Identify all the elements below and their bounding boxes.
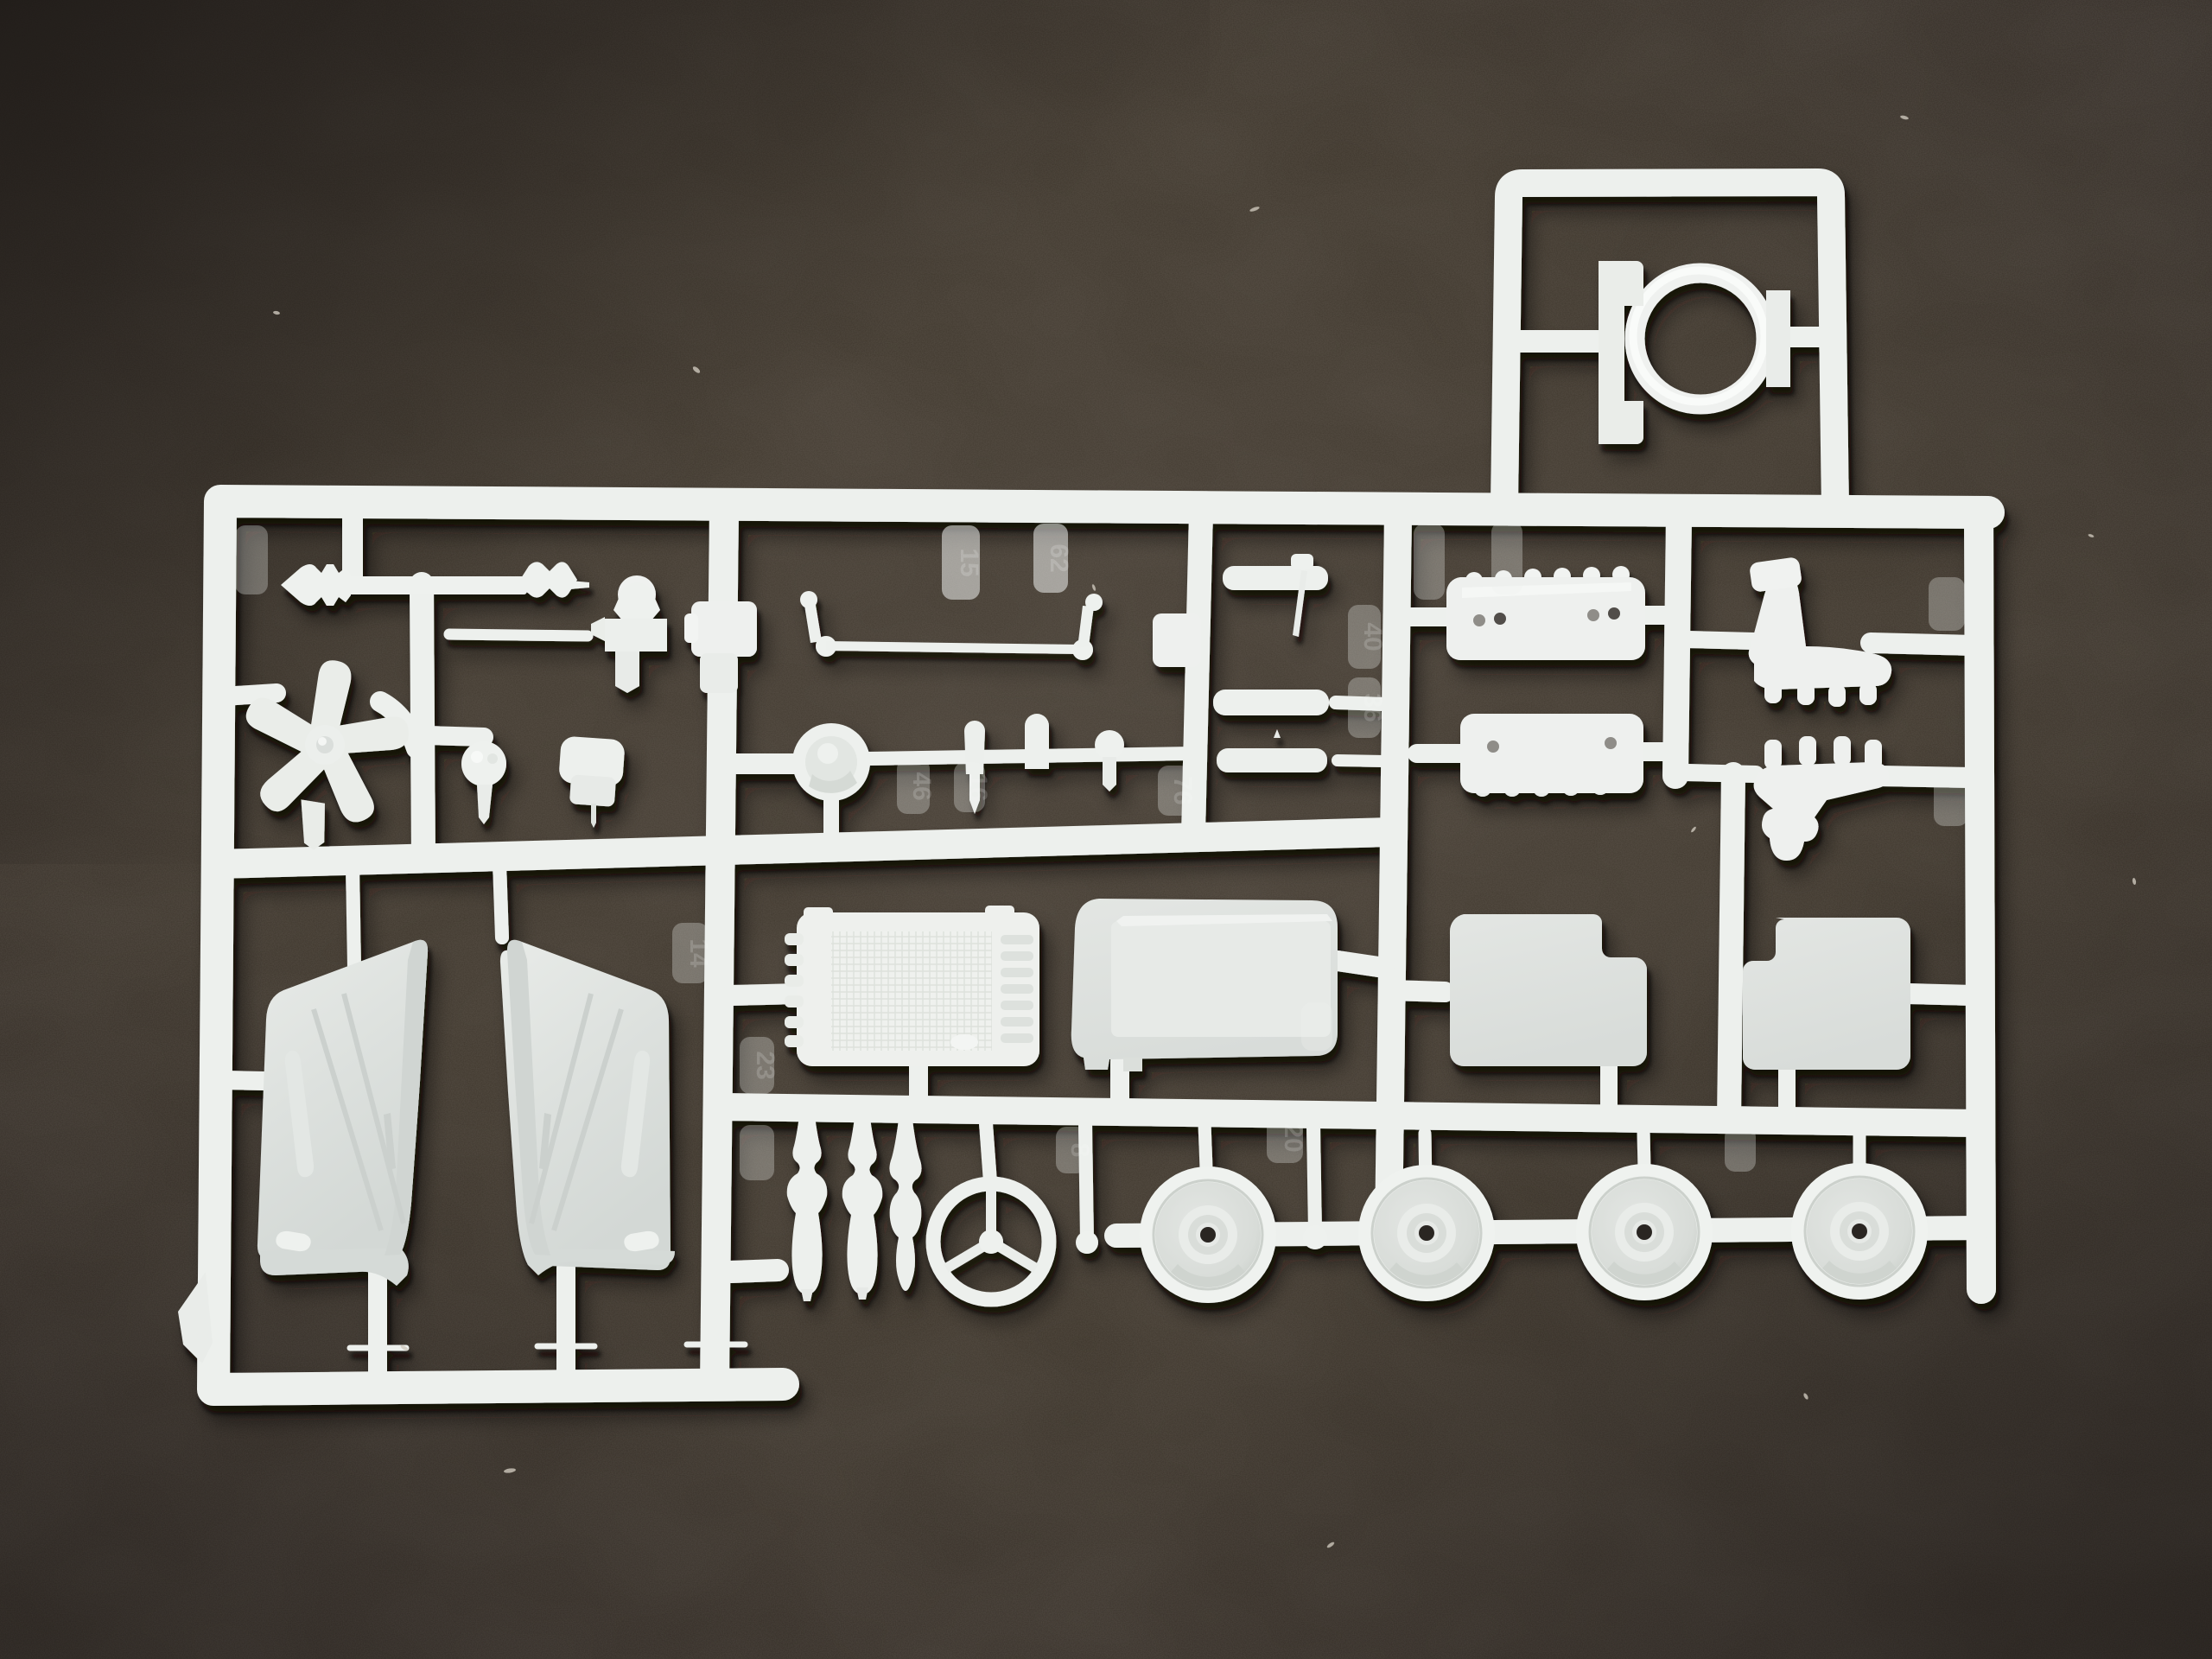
svg-text:62: 62 bbox=[1045, 543, 1073, 572]
svg-text:15: 15 bbox=[955, 548, 983, 576]
